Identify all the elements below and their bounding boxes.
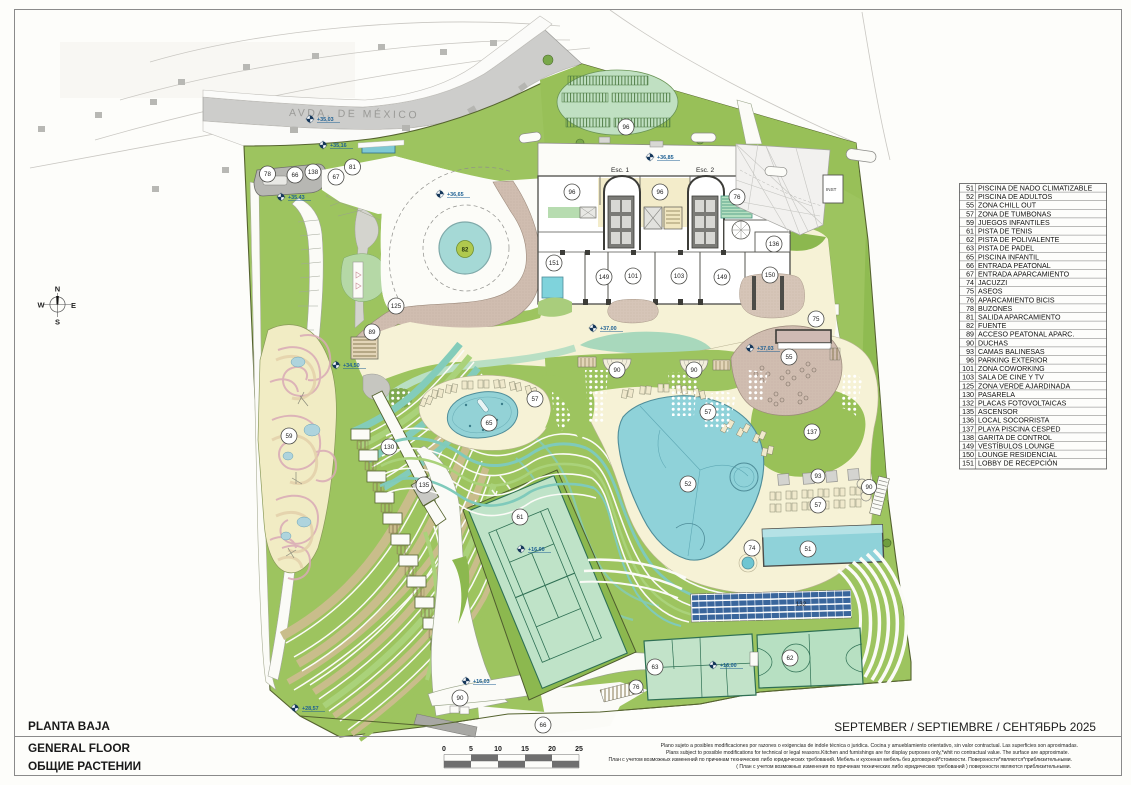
svg-text:W: W [37, 301, 45, 310]
svg-text:135: 135 [419, 482, 430, 489]
svg-text:90: 90 [691, 367, 698, 374]
svg-text:( План с учетом возможных изме: ( План с учетом возможных изменения по п… [736, 763, 1071, 770]
svg-text:96: 96 [569, 189, 576, 196]
svg-text:63: 63 [652, 664, 659, 671]
svg-text:0: 0 [442, 746, 446, 753]
svg-text:+16,00: +16,00 [720, 663, 737, 669]
svg-text:N: N [55, 285, 60, 294]
svg-text:138: 138 [962, 434, 974, 442]
svg-text:PASARELA: PASARELA [978, 391, 1015, 399]
svg-text:132: 132 [962, 400, 974, 408]
svg-text:ENTRADA PEATONAL: ENTRADA PEATONAL [978, 262, 1051, 270]
svg-text:JUEGOS INFANTILES: JUEGOS INFANTILES [978, 219, 1050, 227]
svg-text:78: 78 [966, 305, 974, 313]
svg-text:67: 67 [333, 174, 340, 181]
svg-text:59: 59 [286, 433, 293, 440]
svg-text:93: 93 [815, 473, 822, 480]
svg-text:130: 130 [384, 444, 395, 451]
svg-text:51: 51 [966, 185, 974, 193]
svg-text:+35,43: +35,43 [288, 195, 305, 201]
svg-text:65: 65 [966, 253, 974, 261]
svg-text:57: 57 [966, 210, 974, 218]
svg-text:+35,03: +35,03 [317, 117, 334, 123]
svg-text:103: 103 [962, 374, 974, 382]
svg-text:PISCINA INFANTIL: PISCINA INFANTIL [978, 253, 1039, 261]
svg-text:PISCINA DE NADO CLIMATIZABLE: PISCINA DE NADO CLIMATIZABLE [978, 185, 1092, 193]
svg-text:PISTA DE TENIS: PISTA DE TENIS [978, 228, 1032, 236]
svg-text:Esc. 1: Esc. 1 [611, 167, 629, 174]
svg-text:101: 101 [962, 365, 974, 373]
svg-text:76: 76 [633, 684, 640, 691]
svg-text:52: 52 [685, 481, 692, 488]
svg-text:GARITA DE CONTROL: GARITA DE CONTROL [978, 434, 1052, 442]
svg-text:GENERAL FLOOR: GENERAL FLOOR [28, 741, 131, 755]
svg-text:PARKING EXTERIOR: PARKING EXTERIOR [978, 357, 1048, 365]
svg-text:137: 137 [807, 429, 818, 436]
svg-text:15: 15 [521, 746, 529, 753]
svg-text:ZONA VERDE AJARDINADA: ZONA VERDE AJARDINADA [978, 382, 1071, 390]
svg-text:149: 149 [599, 274, 610, 281]
svg-text:61: 61 [517, 514, 524, 521]
svg-text:+36,85: +36,85 [657, 155, 674, 161]
svg-text:125: 125 [962, 382, 974, 390]
svg-text:20: 20 [548, 746, 556, 753]
svg-text:138: 138 [308, 169, 319, 176]
svg-text:+16,03: +16,03 [473, 679, 490, 685]
svg-text:76: 76 [966, 296, 974, 304]
svg-text:PLAYA PISCINA CESPED: PLAYA PISCINA CESPED [978, 425, 1061, 433]
svg-text:61: 61 [966, 228, 974, 236]
svg-text:+35,16: +35,16 [330, 143, 347, 149]
svg-text:S: S [55, 318, 60, 327]
svg-text:ZONA CHILL OUT: ZONA CHILL OUT [978, 202, 1037, 210]
svg-text:52: 52 [966, 193, 974, 201]
svg-text:+28,57: +28,57 [302, 706, 319, 712]
svg-text:25: 25 [575, 746, 583, 753]
svg-text:INST: INST [826, 187, 837, 192]
svg-text:E: E [71, 301, 76, 310]
svg-text:LOBBY DE RECEPCIÓN: LOBBY DE RECEPCIÓN [978, 459, 1058, 468]
svg-text:78: 78 [264, 171, 271, 178]
svg-text:Plans subject to possible modi: Plans subject to possible modifications … [666, 750, 1069, 756]
svg-text:75: 75 [813, 316, 820, 323]
svg-text:+37,03: +37,03 [757, 346, 774, 352]
svg-text:132: 132 [796, 601, 807, 608]
svg-text:90: 90 [614, 367, 621, 374]
svg-text:65: 65 [486, 420, 493, 427]
svg-text:89: 89 [369, 329, 376, 336]
svg-text:PLACAS FOTOVOLTAICAS: PLACAS FOTOVOLTAICAS [978, 400, 1067, 408]
svg-text:63: 63 [966, 245, 974, 253]
svg-text:ASEOS: ASEOS [978, 288, 1003, 296]
svg-text:150: 150 [765, 272, 776, 279]
svg-text:BUZONES: BUZONES [978, 305, 1013, 313]
svg-text:57: 57 [705, 409, 712, 416]
svg-text:74: 74 [749, 545, 756, 552]
svg-text:66: 66 [292, 172, 299, 179]
svg-text:96: 96 [623, 124, 630, 131]
svg-text:151: 151 [962, 460, 974, 468]
svg-text:DUCHAS: DUCHAS [978, 339, 1008, 347]
svg-text:150: 150 [962, 451, 974, 459]
svg-text:93: 93 [966, 348, 974, 356]
svg-text:137: 137 [962, 425, 974, 433]
svg-text:90: 90 [866, 484, 873, 491]
svg-text:101: 101 [628, 273, 639, 280]
svg-text:149: 149 [962, 443, 974, 451]
svg-text:+16,00: +16,00 [528, 547, 545, 553]
svg-text:57: 57 [532, 396, 539, 403]
svg-text:ASCENSOR: ASCENSOR [978, 408, 1018, 416]
svg-text:62: 62 [787, 655, 794, 662]
svg-text:LOCAL SOCORRISTA: LOCAL SOCORRISTA [978, 417, 1050, 425]
svg-text:151: 151 [549, 260, 560, 267]
svg-text:SEPTEMBER / SEPTIEMBRE / СЕНТЯ: SEPTEMBER / SEPTIEMBRE / СЕНТЯБРЬ 2025 [834, 720, 1096, 734]
svg-text:APARCAMIENTO BICIS: APARCAMIENTO BICIS [978, 296, 1055, 304]
svg-text:135: 135 [962, 408, 974, 416]
svg-text:ZONA COWORKING: ZONA COWORKING [978, 365, 1045, 373]
svg-text:SALA DE CINE Y TV: SALA DE CINE Y TV [978, 374, 1044, 382]
svg-text:136: 136 [962, 417, 974, 425]
svg-text:LOUNGE RESIDENCIAL: LOUNGE RESIDENCIAL [978, 451, 1057, 459]
svg-text:55: 55 [786, 354, 793, 361]
svg-text:66: 66 [540, 722, 547, 729]
svg-text:90: 90 [457, 695, 464, 702]
svg-text:76: 76 [734, 194, 741, 201]
svg-text:81: 81 [349, 164, 356, 171]
svg-text:10: 10 [494, 746, 502, 753]
svg-text:ENTRADA APARCAMIENTO: ENTRADA APARCAMIENTO [978, 271, 1070, 279]
svg-text:+34,50: +34,50 [343, 363, 360, 369]
svg-text:57: 57 [815, 502, 822, 509]
svg-text:ACCESO PEATONAL APARC.: ACCESO PEATONAL APARC. [978, 331, 1074, 339]
svg-text:ОБЩИЕ РАСТЕНИИ: ОБЩИЕ РАСТЕНИИ [28, 759, 141, 773]
svg-text:66: 66 [966, 262, 974, 270]
svg-text:81: 81 [966, 314, 974, 322]
svg-text:103: 103 [674, 273, 685, 280]
svg-text:51: 51 [805, 546, 812, 553]
svg-text:SALIDA APARCAMIENTO: SALIDA APARCAMIENTO [978, 314, 1061, 322]
svg-text:ZONA DE TUMBONAS: ZONA DE TUMBONAS [978, 210, 1051, 218]
svg-text:PLANTA BAJA: PLANTA BAJA [28, 719, 110, 733]
svg-text:PISTA DE POLIVALENTE: PISTA DE POLIVALENTE [978, 236, 1060, 244]
svg-text:+36,65: +36,65 [447, 192, 464, 198]
svg-text:136: 136 [769, 241, 780, 248]
svg-text:PISCINA DE ADULTOS: PISCINA DE ADULTOS [978, 193, 1053, 201]
svg-text:96: 96 [966, 357, 974, 365]
svg-text:82: 82 [966, 322, 974, 330]
svg-text:План с учетом возможных измене: План с учетом возможных изменений по при… [608, 756, 1072, 763]
svg-text:CAMAS BALINESAS: CAMAS BALINESAS [978, 348, 1045, 356]
svg-text:62: 62 [966, 236, 974, 244]
svg-text:130: 130 [962, 391, 974, 399]
svg-text:Plano sujeto a posibles modifi: Plano sujeto a posibles modificaciones p… [661, 743, 1078, 749]
svg-text:125: 125 [391, 303, 402, 310]
svg-text:82: 82 [462, 248, 469, 254]
svg-text:90: 90 [966, 339, 974, 347]
svg-text:+37,00: +37,00 [600, 326, 617, 332]
svg-text:JACUZZI: JACUZZI [978, 279, 1007, 287]
svg-text:VESTÍBULOS LOUNGE: VESTÍBULOS LOUNGE [978, 442, 1055, 451]
svg-text:74: 74 [966, 279, 974, 287]
svg-text:75: 75 [966, 288, 974, 296]
svg-text:Esc. 2: Esc. 2 [696, 167, 714, 174]
svg-text:55: 55 [966, 202, 974, 210]
svg-text:67: 67 [966, 271, 974, 279]
svg-text:59: 59 [966, 219, 974, 227]
svg-text:96: 96 [657, 189, 664, 196]
svg-text:5: 5 [469, 746, 473, 753]
svg-text:89: 89 [966, 331, 974, 339]
svg-text:149: 149 [717, 274, 728, 281]
svg-text:PISTA DE PADEL: PISTA DE PADEL [978, 245, 1034, 253]
svg-text:FUENTE: FUENTE [978, 322, 1007, 330]
